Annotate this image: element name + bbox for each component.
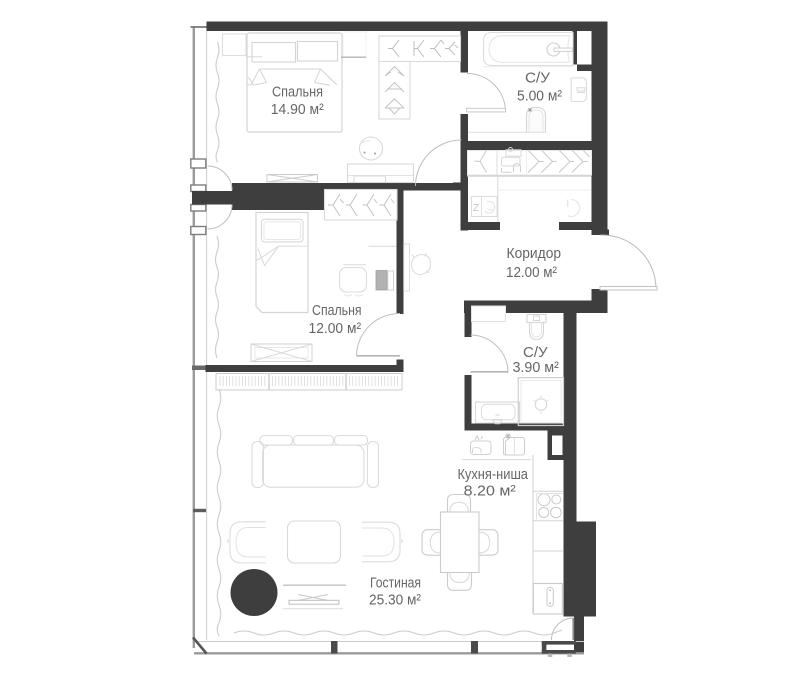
svg-text:8.20 м²: 8.20 м² (464, 483, 516, 500)
svg-text:С/У: С/У (525, 69, 550, 86)
svg-text:12.00 м²: 12.00 м² (309, 320, 362, 337)
svg-text:12.00 м²: 12.00 м² (506, 264, 557, 281)
svg-text:25.30 м²: 25.30 м² (369, 592, 421, 609)
svg-text:Гостиная: Гостиная (370, 575, 421, 592)
svg-text:Кухня-ниша: Кухня-ниша (457, 466, 528, 483)
svg-text:Коридор: Коридор (507, 245, 562, 262)
svg-text:Спальня: Спальня (312, 302, 362, 319)
svg-text:5.00 м²: 5.00 м² (517, 87, 562, 104)
svg-text:3.90 м²: 3.90 м² (512, 359, 559, 376)
svg-text:Спальня: Спальня (272, 84, 323, 101)
svg-text:14.90 м²: 14.90 м² (271, 101, 324, 118)
